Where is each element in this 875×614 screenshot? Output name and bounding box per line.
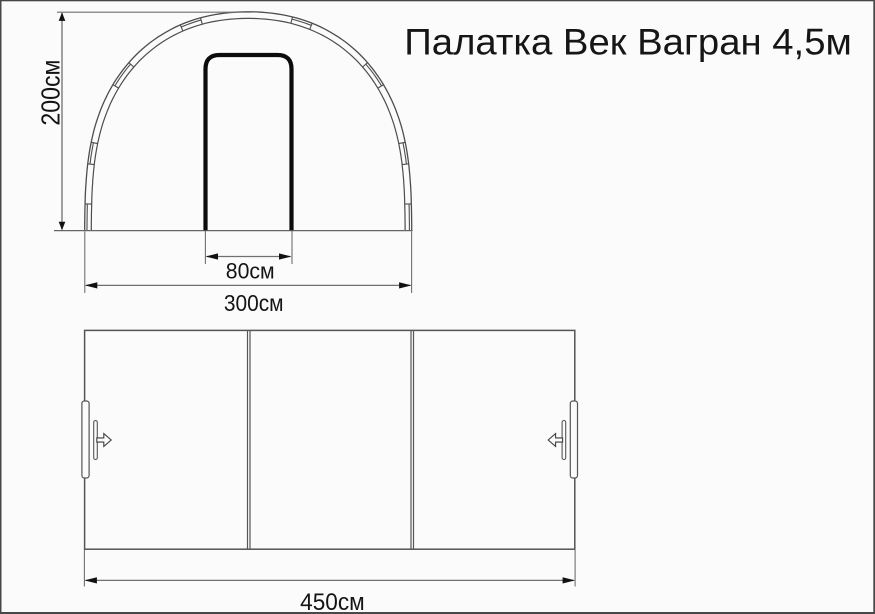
svg-text:450см: 450см — [300, 589, 365, 614]
svg-text:80см: 80см — [226, 258, 275, 283]
svg-text:Палатка Век Вагран 4,5м: Палатка Век Вагран 4,5м — [404, 21, 852, 62]
svg-text:200см: 200см — [36, 60, 66, 126]
svg-text:300см: 300см — [224, 290, 284, 316]
